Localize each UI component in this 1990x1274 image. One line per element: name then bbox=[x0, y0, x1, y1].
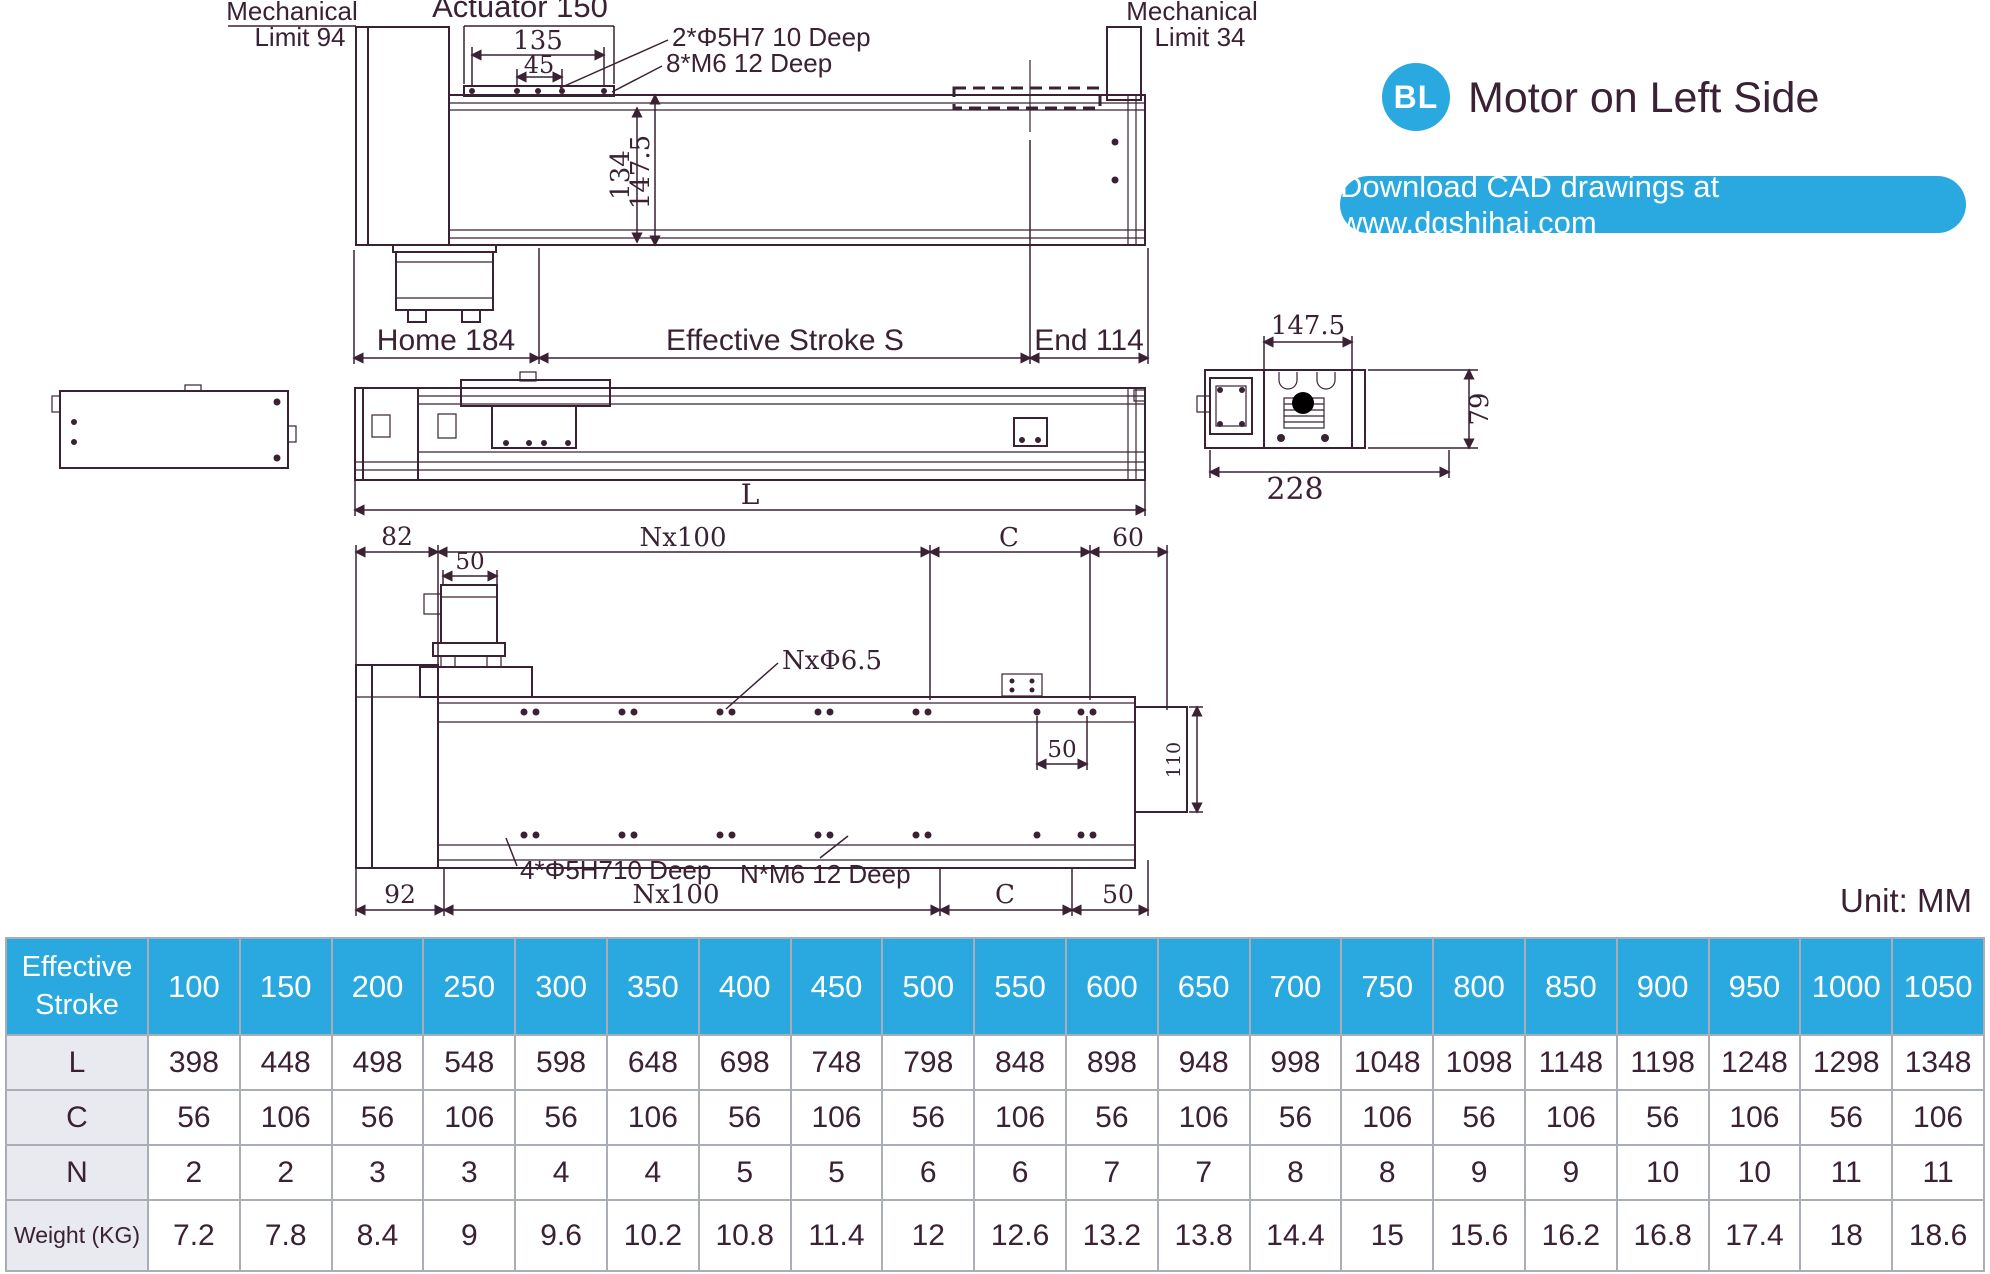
bottom-view-geometry bbox=[356, 585, 1187, 868]
dimension-table: Effective Stroke100150200250300350400450… bbox=[5, 937, 1985, 1272]
table-cell: 6 bbox=[974, 1145, 1066, 1200]
stroke-header-cell: 100 bbox=[148, 938, 240, 1035]
table-cell: 498 bbox=[332, 1035, 424, 1090]
table-cell: 12 bbox=[882, 1200, 974, 1271]
table-cell: 8 bbox=[1250, 1145, 1342, 1200]
table-cell: 56 bbox=[882, 1090, 974, 1145]
table-cell: 16.2 bbox=[1525, 1200, 1617, 1271]
row-label: N bbox=[6, 1145, 148, 1200]
table-cell: 8 bbox=[1341, 1145, 1433, 1200]
dim-82: 82 bbox=[381, 522, 413, 551]
table-cell: 1298 bbox=[1800, 1035, 1892, 1090]
label-mechanical-limit-left-line2: Limit 94 bbox=[254, 22, 345, 52]
table-cell: 3 bbox=[423, 1145, 515, 1200]
dim-45: 45 bbox=[524, 51, 555, 79]
table-cell: 56 bbox=[515, 1090, 607, 1145]
table-cell: 1098 bbox=[1433, 1035, 1525, 1090]
table-cell: 9 bbox=[1433, 1145, 1525, 1200]
table-cell: 18 bbox=[1800, 1200, 1892, 1271]
table-cell: 1048 bbox=[1341, 1035, 1433, 1090]
table-cell: 18.6 bbox=[1892, 1200, 1984, 1271]
dim-L: L bbox=[741, 478, 760, 511]
table-cell: 548 bbox=[423, 1035, 515, 1090]
table-cell: 14.4 bbox=[1250, 1200, 1342, 1271]
row-label: Weight (KG) bbox=[6, 1200, 148, 1271]
stroke-header-cell: 850 bbox=[1525, 938, 1617, 1035]
stroke-header-cell: 950 bbox=[1709, 938, 1801, 1035]
dim-60: 60 bbox=[1112, 523, 1144, 552]
table-header-row: Effective Stroke100150200250300350400450… bbox=[6, 938, 1984, 1035]
dim-110: 110 bbox=[1163, 742, 1185, 778]
table-cell: 448 bbox=[240, 1035, 332, 1090]
table-cell: 4 bbox=[515, 1145, 607, 1200]
table-cell: 10 bbox=[1709, 1145, 1801, 1200]
side-view-geometry bbox=[52, 372, 1145, 480]
table-cell: 998 bbox=[1250, 1035, 1342, 1090]
table-cell: 56 bbox=[699, 1090, 791, 1145]
stroke-header-cell: 1050 bbox=[1892, 938, 1984, 1035]
table-cell: 2 bbox=[240, 1145, 332, 1200]
table-cell: 598 bbox=[515, 1035, 607, 1090]
table-cell: 9 bbox=[1525, 1145, 1617, 1200]
row-label: C bbox=[6, 1090, 148, 1145]
end-view-geometry bbox=[1197, 370, 1365, 448]
table-cell: 106 bbox=[607, 1090, 699, 1145]
drawing-title: Motor on Left Side bbox=[1468, 74, 1819, 123]
table-cell: 648 bbox=[607, 1035, 699, 1090]
end-view-dimensions bbox=[1210, 336, 1478, 478]
dim-79: 79 bbox=[1465, 392, 1495, 425]
table-cell: 798 bbox=[882, 1035, 974, 1090]
row-label: L bbox=[6, 1035, 148, 1090]
table-cell: 7 bbox=[1066, 1145, 1158, 1200]
dim-228: 228 bbox=[1266, 472, 1323, 507]
stroke-header-cell: 450 bbox=[791, 938, 883, 1035]
table-cell: 16.8 bbox=[1617, 1200, 1709, 1271]
note-tapped-holes-bottom: N*M6 12 Deep bbox=[740, 859, 911, 889]
stroke-header-cell: 200 bbox=[332, 938, 424, 1035]
table-cell: 56 bbox=[1617, 1090, 1709, 1145]
table-row: L398448498548598648698748798848898948998… bbox=[6, 1035, 1984, 1090]
stroke-header-cell: 800 bbox=[1433, 938, 1525, 1035]
table-cell: 106 bbox=[1341, 1090, 1433, 1145]
table-cell: 1148 bbox=[1525, 1035, 1617, 1090]
table-cell: 9.6 bbox=[515, 1200, 607, 1271]
table-cell: 13.8 bbox=[1158, 1200, 1250, 1271]
table-cell: 8.4 bbox=[332, 1200, 424, 1271]
dim-nx100-bottom: Nx100 bbox=[632, 880, 719, 910]
cad-download-banner[interactable]: Download CAD drawings at www.dgshihai.co… bbox=[1340, 176, 1966, 233]
dim-92: 92 bbox=[384, 880, 416, 909]
technical-drawing: Mechanical Limit 94 Actuator 150 135 45 … bbox=[0, 0, 1990, 932]
table-cell: 106 bbox=[240, 1090, 332, 1145]
stroke-header-cell: 600 bbox=[1066, 938, 1158, 1035]
stroke-header-cell: 750 bbox=[1341, 938, 1433, 1035]
note-n-holes: NxΦ6.5 bbox=[782, 646, 882, 676]
table-cell: 6 bbox=[882, 1145, 974, 1200]
table-cell: 56 bbox=[1800, 1090, 1892, 1145]
table-cell: 7 bbox=[1158, 1145, 1250, 1200]
stroke-header-cell: 650 bbox=[1158, 938, 1250, 1035]
table-cell: 56 bbox=[332, 1090, 424, 1145]
dim-50-motor: 50 bbox=[455, 549, 484, 575]
dim-50-end: 50 bbox=[1102, 880, 1134, 909]
table-cell: 56 bbox=[1250, 1090, 1342, 1145]
stroke-header-cell: 1000 bbox=[1800, 938, 1892, 1035]
label-home-184: Home 184 bbox=[377, 324, 515, 357]
stroke-header-cell: 350 bbox=[607, 938, 699, 1035]
table-cell: 106 bbox=[1892, 1090, 1984, 1145]
table-row: C561065610656106561065610656106561065610… bbox=[6, 1090, 1984, 1145]
table-cell: 7.2 bbox=[148, 1200, 240, 1271]
table-cell: 10.2 bbox=[607, 1200, 699, 1271]
table-cell: 11 bbox=[1892, 1145, 1984, 1200]
table-cell: 748 bbox=[791, 1035, 883, 1090]
table-cell: 106 bbox=[791, 1090, 883, 1145]
stroke-header-cell: 700 bbox=[1250, 938, 1342, 1035]
table-cell: 106 bbox=[1525, 1090, 1617, 1145]
note-tapped-holes-top: 8*M6 12 Deep bbox=[666, 48, 832, 78]
table-cell: 13.2 bbox=[1066, 1200, 1158, 1271]
stroke-header-cell: 900 bbox=[1617, 938, 1709, 1035]
table-cell: 56 bbox=[1433, 1090, 1525, 1145]
table-cell: 898 bbox=[1066, 1035, 1158, 1090]
table-cell: 698 bbox=[699, 1035, 791, 1090]
table-row: N223344556677889910101111 bbox=[6, 1145, 1984, 1200]
table-cell: 948 bbox=[1158, 1035, 1250, 1090]
table-cell: 106 bbox=[974, 1090, 1066, 1145]
table-cell: 17.4 bbox=[1709, 1200, 1801, 1271]
table-header-effective-stroke: Effective Stroke bbox=[6, 938, 148, 1035]
stroke-header-cell: 300 bbox=[515, 938, 607, 1035]
table-cell: 4 bbox=[607, 1145, 699, 1200]
table-cell: 398 bbox=[148, 1035, 240, 1090]
table-cell: 7.8 bbox=[240, 1200, 332, 1271]
dim-nx100-top: Nx100 bbox=[639, 523, 726, 553]
table-cell: 11 bbox=[1800, 1145, 1892, 1200]
dim-147-5-front: 147.5 bbox=[626, 135, 656, 209]
dim-50-pitch: 50 bbox=[1047, 737, 1076, 763]
table-cell: 10 bbox=[1617, 1145, 1709, 1200]
dim-147-5-end: 147.5 bbox=[1271, 311, 1345, 341]
label-mechanical-limit-right-line2: Limit 34 bbox=[1154, 22, 1245, 52]
table-cell: 1198 bbox=[1617, 1035, 1709, 1090]
table-cell: 10.8 bbox=[699, 1200, 791, 1271]
dim-c-bottom: C bbox=[995, 880, 1015, 910]
label-end-114: End 114 bbox=[1034, 324, 1144, 357]
stroke-header-cell: 400 bbox=[699, 938, 791, 1035]
stroke-header-cell: 250 bbox=[423, 938, 515, 1035]
table-cell: 11.4 bbox=[791, 1200, 883, 1271]
table-cell: 848 bbox=[974, 1035, 1066, 1090]
table-cell: 9 bbox=[423, 1200, 515, 1271]
label-effective-stroke-s: Effective Stroke S bbox=[666, 324, 904, 357]
table-cell: 15 bbox=[1341, 1200, 1433, 1271]
table-cell: 106 bbox=[1709, 1090, 1801, 1145]
model-badge: BL bbox=[1382, 63, 1450, 131]
dim-c-top: C bbox=[999, 523, 1019, 553]
table-cell: 106 bbox=[1158, 1090, 1250, 1145]
table-cell: 5 bbox=[791, 1145, 883, 1200]
table-cell: 3 bbox=[332, 1145, 424, 1200]
table-cell: 56 bbox=[148, 1090, 240, 1145]
table-row: Weight (KG)7.27.88.499.610.210.811.41212… bbox=[6, 1200, 1984, 1271]
table-cell: 2 bbox=[148, 1145, 240, 1200]
table-cell: 1248 bbox=[1709, 1035, 1801, 1090]
table-cell: 106 bbox=[423, 1090, 515, 1145]
table-cell: 12.6 bbox=[974, 1200, 1066, 1271]
table-cell: 5 bbox=[699, 1145, 791, 1200]
stroke-header-cell: 500 bbox=[882, 938, 974, 1035]
stroke-header-cell: 550 bbox=[974, 938, 1066, 1035]
stroke-header-cell: 150 bbox=[240, 938, 332, 1035]
table-cell: 1348 bbox=[1892, 1035, 1984, 1090]
label-actuator-150: Actuator 150 bbox=[432, 0, 608, 24]
table-cell: 15.6 bbox=[1433, 1200, 1525, 1271]
unit-note: Unit: MM bbox=[1840, 882, 1972, 920]
table-cell: 56 bbox=[1066, 1090, 1158, 1145]
actuator-datasheet-page: Mechanical Limit 94 Actuator 150 135 45 … bbox=[0, 0, 1990, 1274]
